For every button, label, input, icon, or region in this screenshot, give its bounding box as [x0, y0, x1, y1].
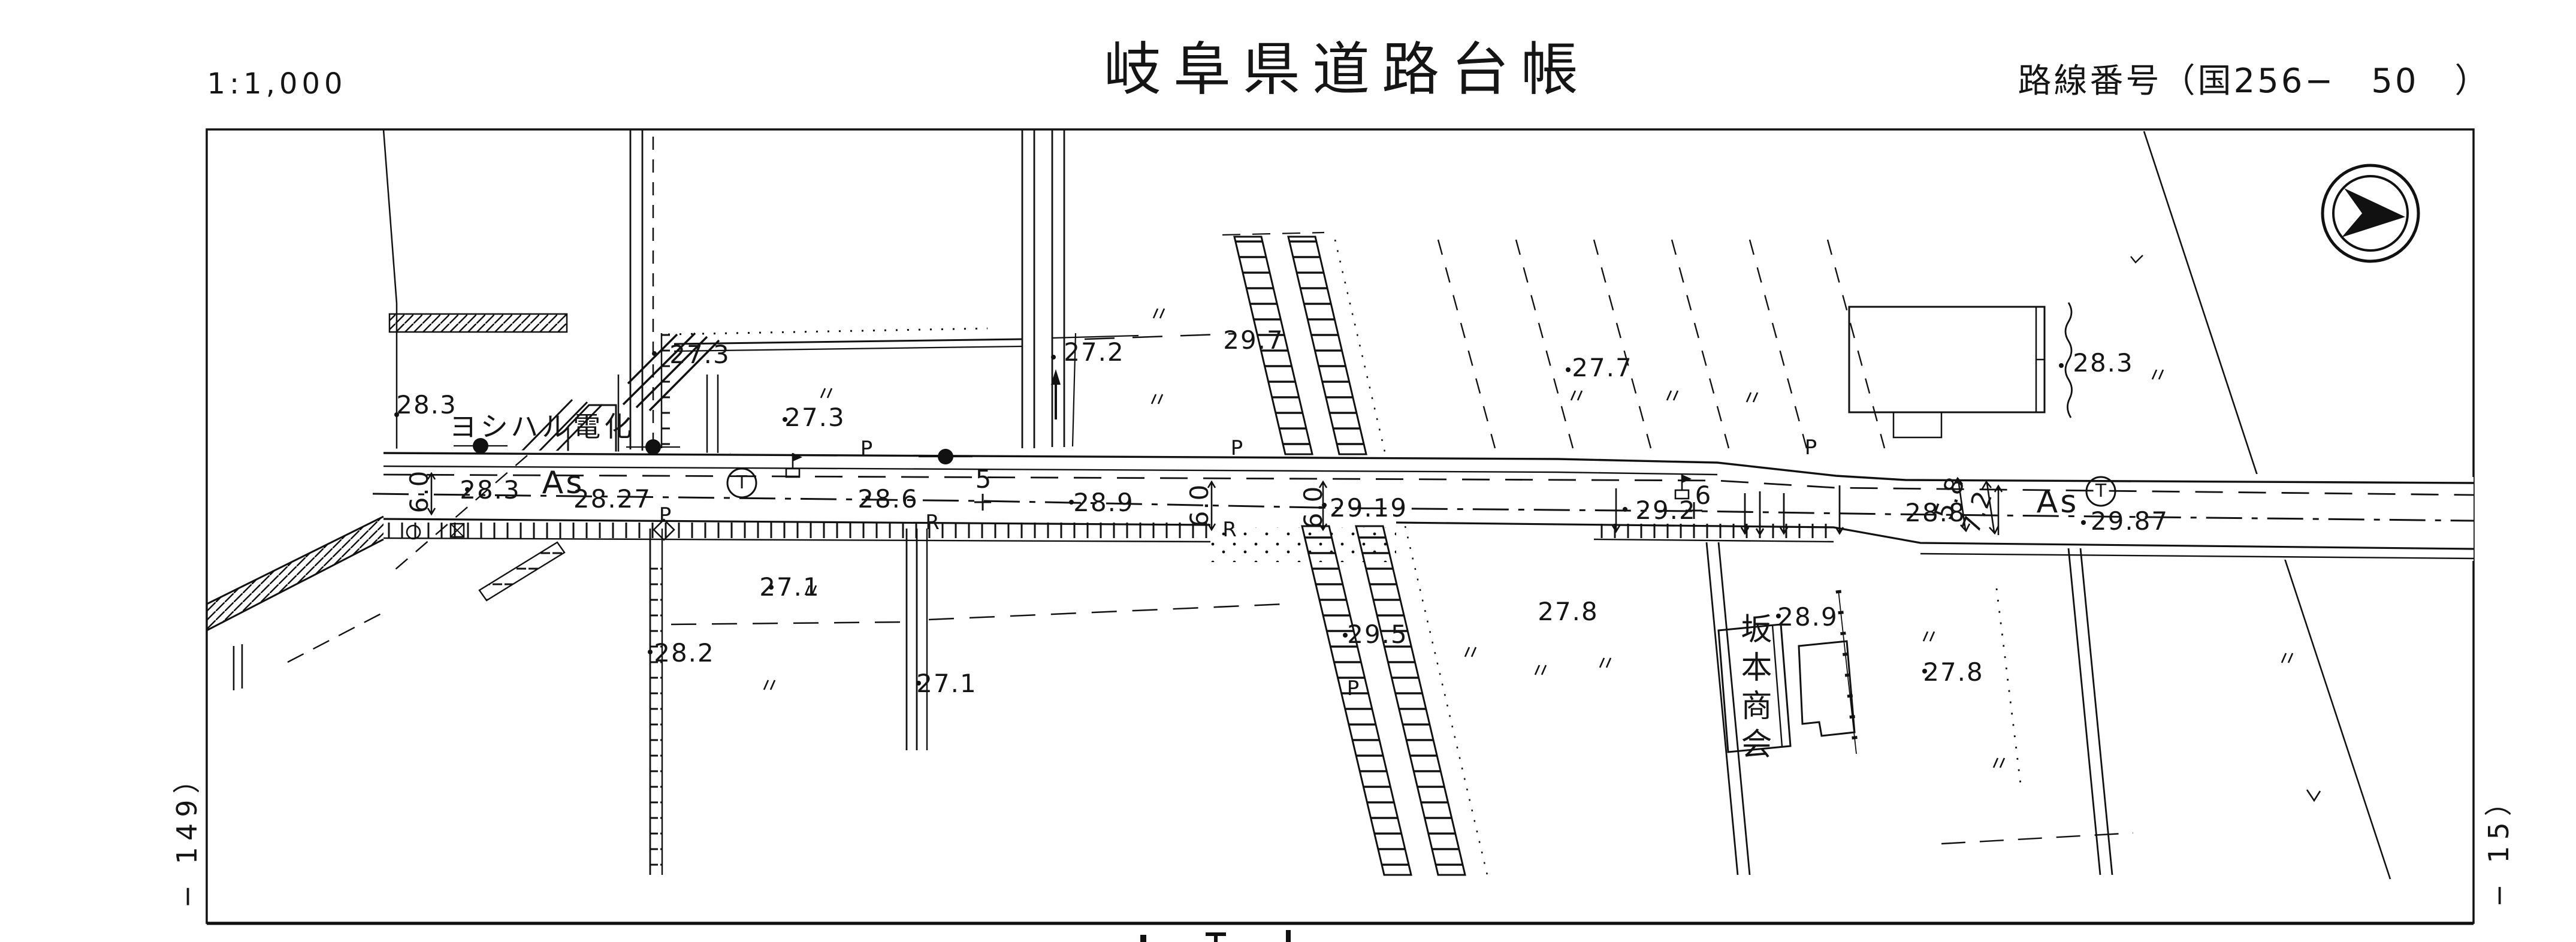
road-width-label: 6.0 — [1301, 485, 1326, 529]
elevation-label: 27.3 — [669, 342, 730, 367]
elevation-label: 28.2 — [654, 641, 715, 666]
elevation-label: 29.2 — [1635, 498, 1696, 523]
street-a — [630, 129, 672, 451]
benchmark-elevation-label: 29.87 — [2091, 509, 2169, 534]
right-margin-note: − 15） — [2485, 783, 2512, 907]
elevation-label: 29.7 — [1223, 328, 1284, 353]
elevation-label: 29.5 — [1347, 622, 1408, 647]
elevation-label: 27.3 — [784, 405, 845, 430]
elevation-label: 27.8 — [1923, 660, 1984, 685]
pole-mark-label: P — [860, 439, 873, 459]
station-number-label: 6 — [1695, 483, 1713, 508]
pavement-type-label: As — [542, 467, 585, 499]
corner-radius-label: R — [1222, 520, 1237, 540]
elevation-label: 28.3 — [2073, 351, 2134, 376]
road-width-label: 6.0 — [407, 470, 432, 514]
elevation-label: 28.3 — [460, 478, 521, 503]
road-register-sheet: 1:1,000 岐阜県道路台帳 路線番号（国256− 50 ） − 149） −… — [0, 0, 2576, 942]
north-arrow-icon — [2323, 165, 2418, 261]
elevation-label: 27.7 — [1572, 355, 1633, 381]
elevation-label: 27.1 — [916, 671, 977, 696]
map-canvas — [0, 0, 2576, 942]
page-title: 岐阜県道路台帳 — [1104, 41, 1590, 98]
benchmark-elevation-label: 28.27 — [573, 487, 651, 512]
elevation-label: 28.9 — [1073, 490, 1134, 515]
circled-t-mark: T — [2095, 482, 2106, 500]
pole-mark-label: P — [1347, 678, 1360, 699]
lower-left-area — [207, 517, 1285, 875]
route-number-label: 路線番号（国256− 50 ） — [2018, 65, 2490, 98]
street-b — [1022, 129, 1076, 448]
business-name-label: ヨシハル電化 — [449, 413, 636, 440]
diagonal-streets-lower — [1302, 526, 1487, 875]
benchmark-elevation-label: 29.19 — [1330, 496, 1408, 521]
corner-radius-label: R — [925, 512, 940, 533]
sakamoto-block — [1707, 542, 2320, 875]
business-name-label: 坂本商会 — [1738, 612, 1769, 766]
scale-label: 1:1,000 — [207, 70, 346, 98]
circled-t-mark: T — [736, 474, 747, 492]
elevation-label: 28.9 — [1777, 605, 1838, 630]
left-margin-note: − 149） — [173, 760, 201, 908]
station-number-label: 5 — [976, 467, 993, 492]
road-width-label: 6.0 — [1187, 484, 1212, 527]
pole-mark-label: P — [1805, 437, 1817, 458]
elevation-label: 27.2 — [1064, 340, 1125, 365]
elevation-label: 27.8 — [1538, 599, 1599, 624]
elevation-label: 27.1 — [759, 575, 820, 600]
elevation-label: 28.6 — [857, 487, 919, 512]
pole-mark-label: P — [659, 505, 672, 526]
pavement-type-label: As — [2037, 487, 2079, 518]
upper-right-fields — [1438, 240, 1885, 448]
pole-mark-label: P — [1231, 438, 1243, 458]
elevation-label: 28.3 — [396, 393, 457, 418]
